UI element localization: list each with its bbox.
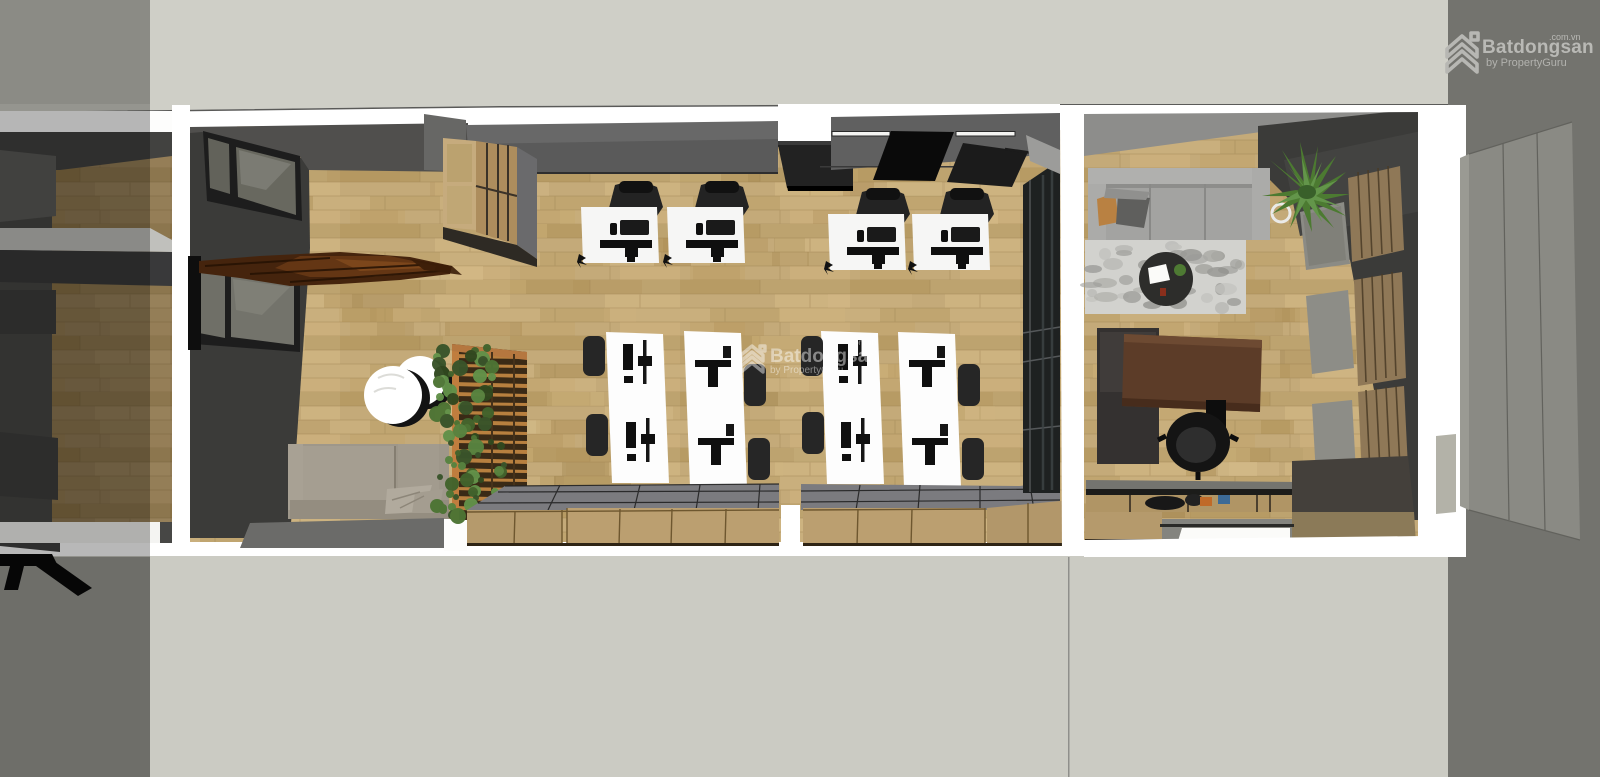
svg-text:by PropertyGuru: by PropertyGuru bbox=[770, 365, 843, 376]
svg-text:.com.vn: .com.vn bbox=[848, 338, 876, 347]
svg-text:.com.vn: .com.vn bbox=[1549, 32, 1581, 42]
svg-text:by PropertyGuru: by PropertyGuru bbox=[1486, 57, 1567, 69]
svg-text:Batdongsan: Batdongsan bbox=[770, 346, 880, 367]
